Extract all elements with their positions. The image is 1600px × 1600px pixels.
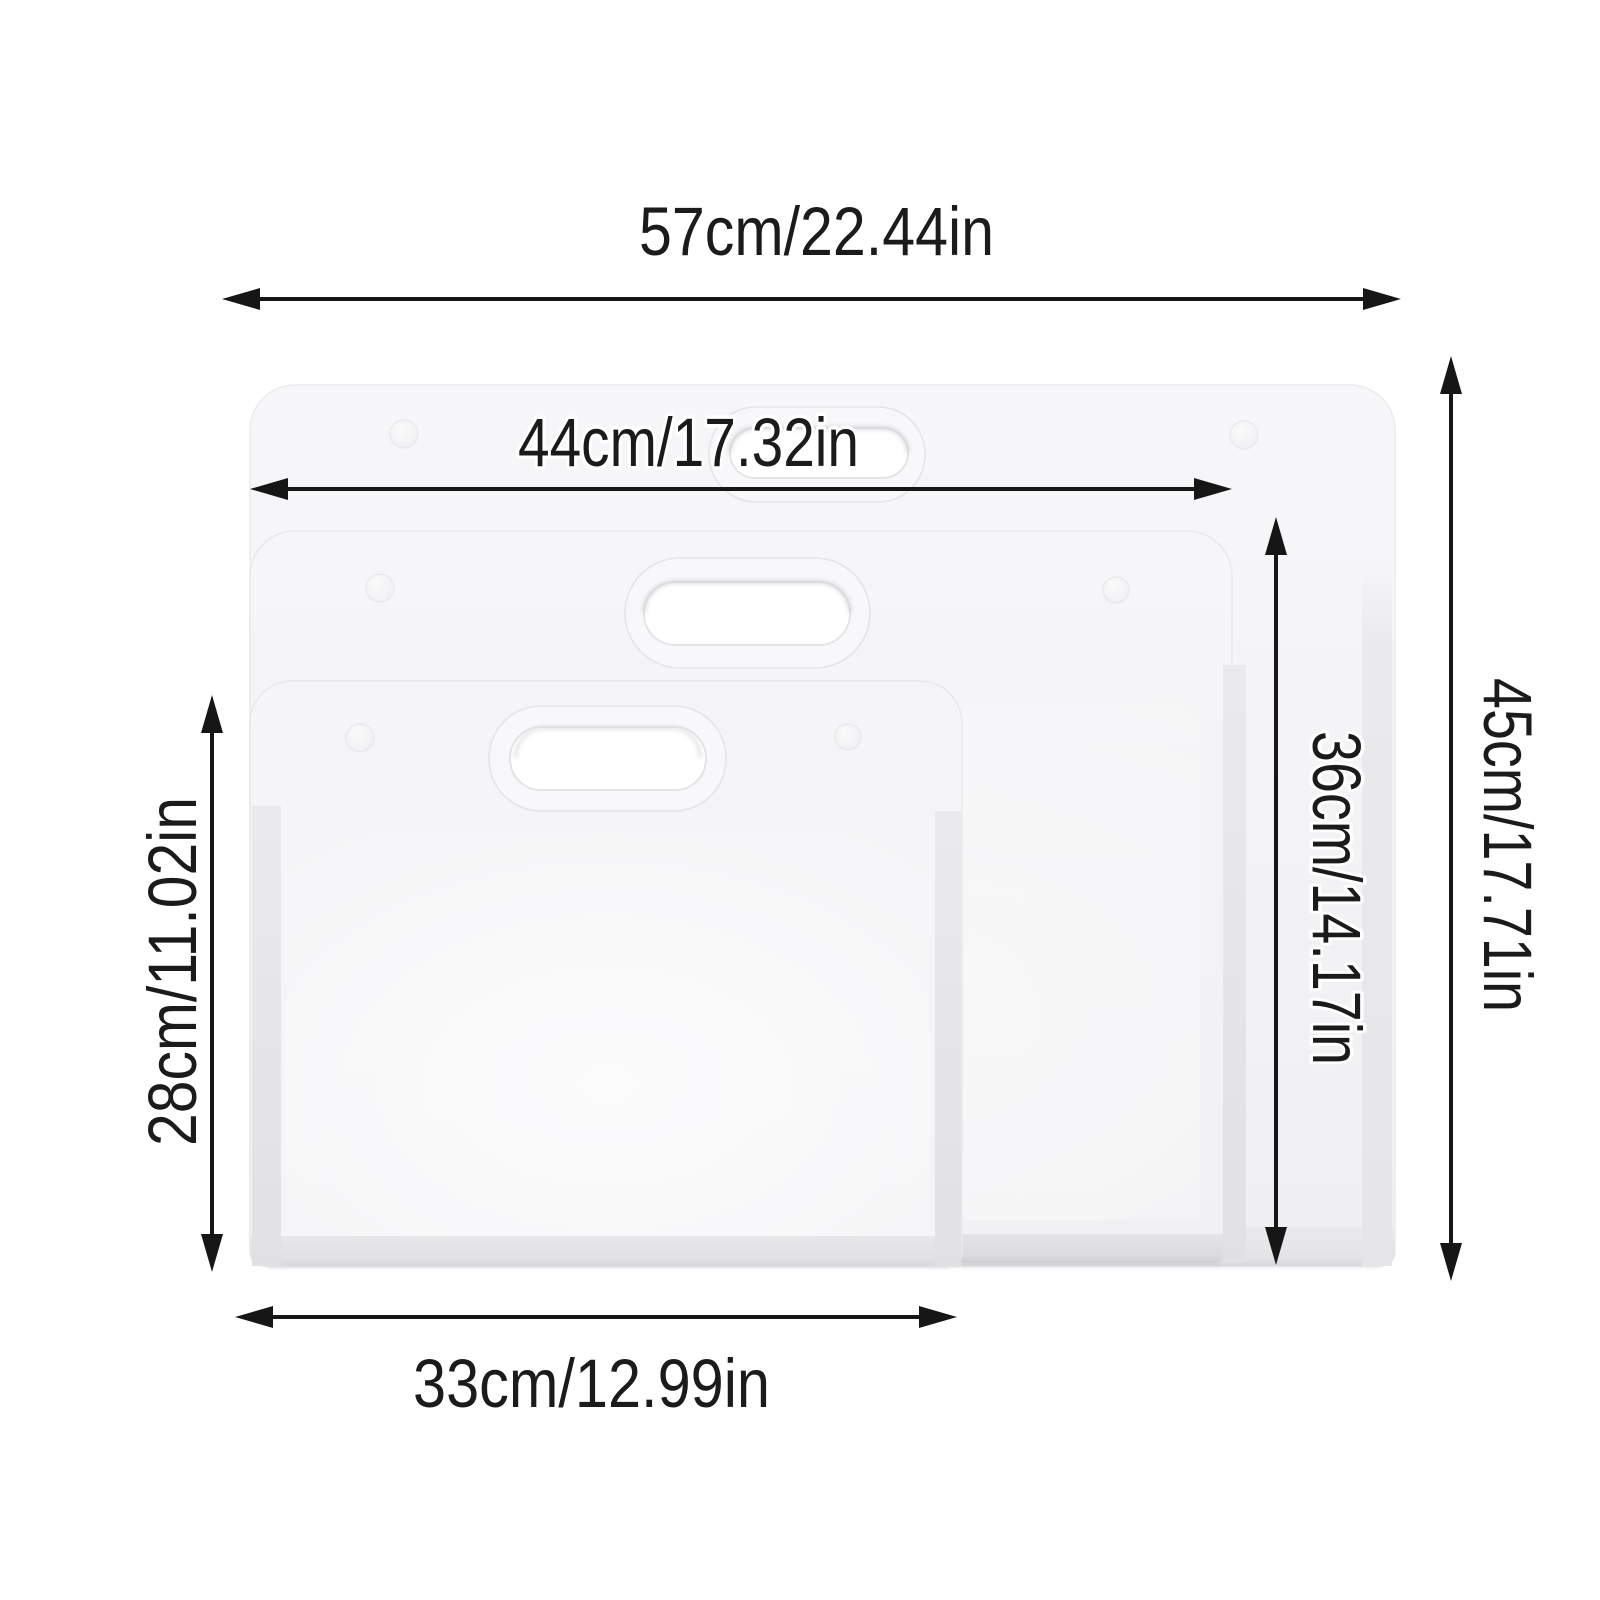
- svg-text:44cm/17.32in: 44cm/17.32in: [518, 404, 859, 481]
- svg-text:28cm/11.02in: 28cm/11.02in: [134, 797, 211, 1146]
- svg-text:45cm/17.71in: 45cm/17.71in: [1469, 678, 1546, 1012]
- svg-text:57cm/22.44in: 57cm/22.44in: [639, 193, 994, 270]
- svg-text:33cm/12.99in: 33cm/12.99in: [413, 1345, 770, 1422]
- svg-text:36cm/14.17in: 36cm/14.17in: [1298, 731, 1375, 1065]
